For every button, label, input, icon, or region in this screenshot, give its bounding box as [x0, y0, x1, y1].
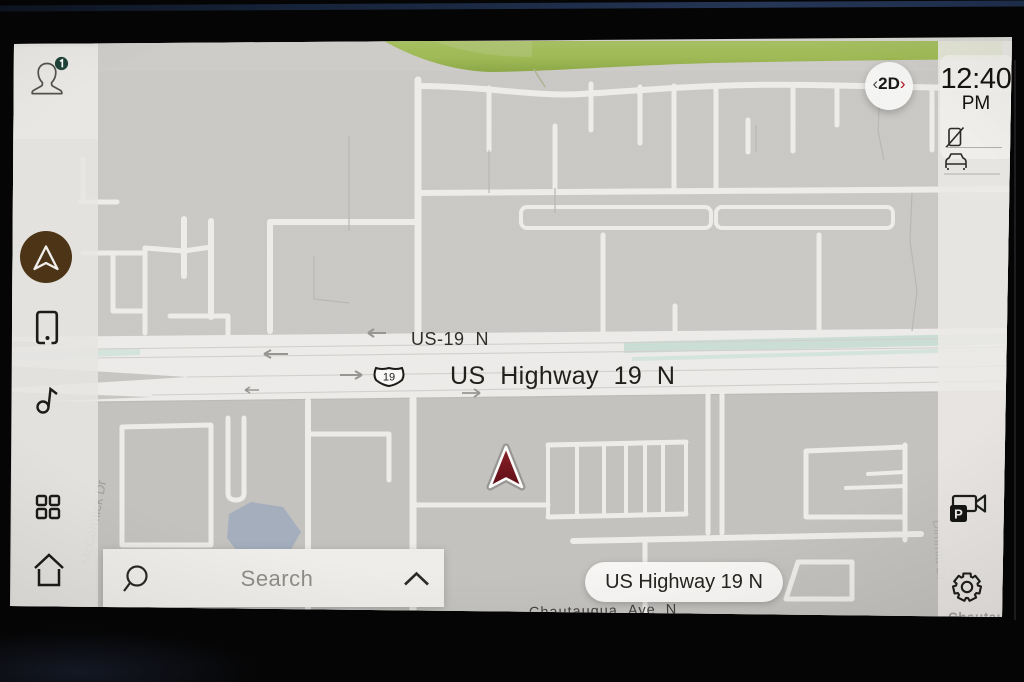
- svg-text:Chautauqua Ave N: Chautauqua Ave N: [529, 602, 678, 619]
- svg-text:US Highway 19 N: US Highway 19 N: [450, 362, 675, 390]
- svg-text:US-19 N: US-19 N: [411, 329, 489, 349]
- svg-text:19: 19: [383, 372, 395, 384]
- svg-text:P: P: [954, 507, 963, 522]
